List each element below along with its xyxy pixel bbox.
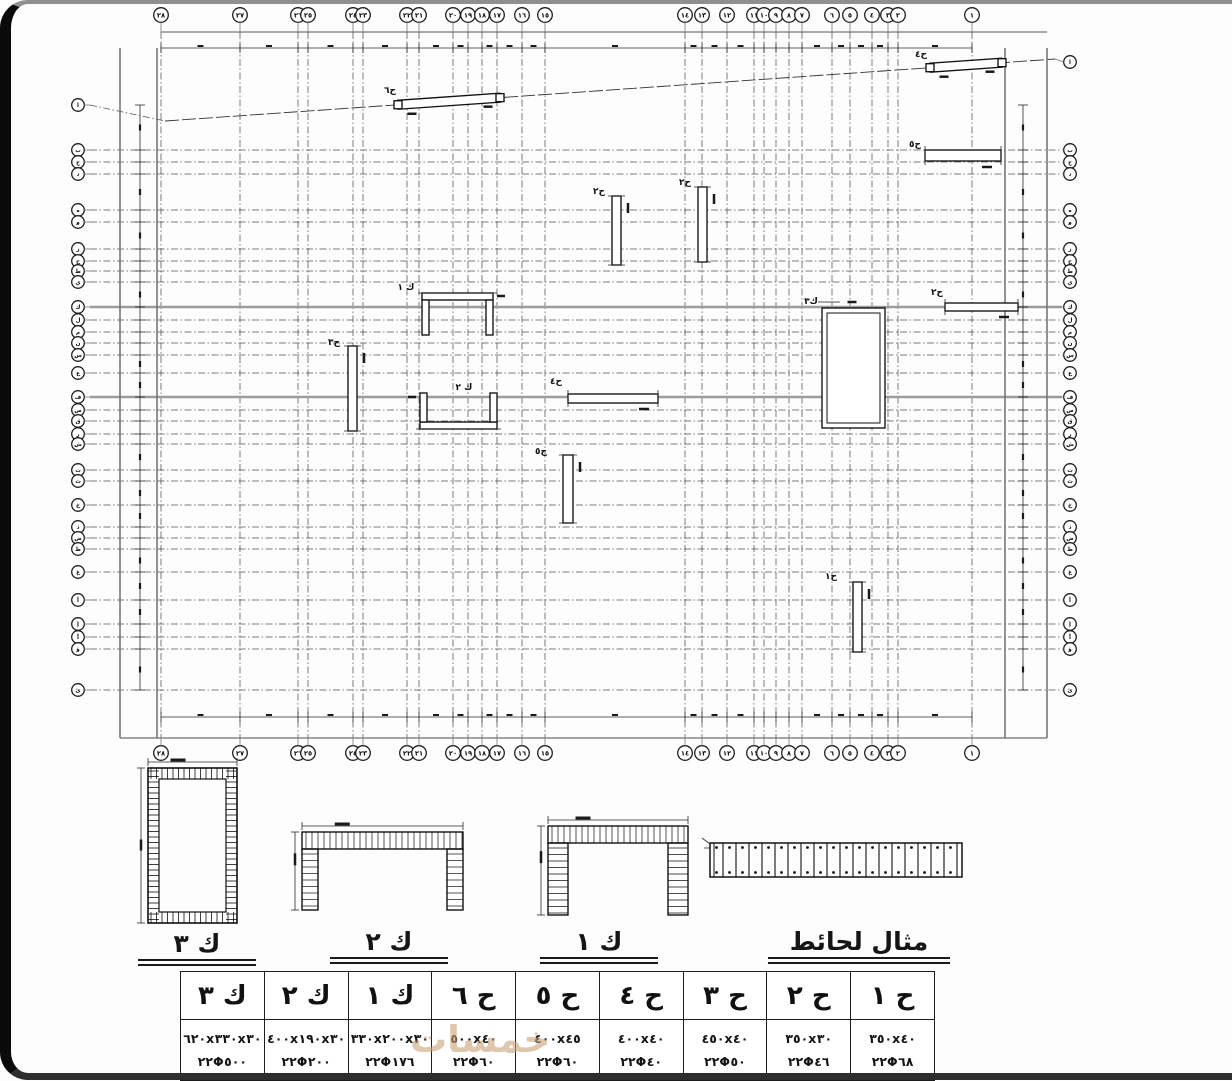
spec-rebar: ٢٢Φ٤٠ [600, 1050, 683, 1073]
svg-text:ي: ي [1067, 280, 1072, 286]
svg-text:٤: ٤ [870, 749, 874, 757]
svg-text:ح٤: ح٤ [550, 377, 563, 387]
spec-rebar: ٢٢Φ٢٠٠ [265, 1050, 348, 1073]
svg-text:ا: ا [77, 103, 79, 109]
spec-col-header: ح ٢ [767, 972, 851, 1020]
svg-text:ك: ك [1067, 305, 1072, 311]
spec-col-header: ح ١ [851, 972, 935, 1020]
svg-text:د: د [77, 172, 80, 178]
svg-text:٢٨: ٢٨ [157, 749, 166, 757]
spec-col-values: ٤٠٠x١٩٠x٣٠٢٢Φ٢٠٠ [264, 1020, 348, 1081]
svg-text:ن: ن [76, 341, 81, 347]
spec-col-header: ك ١ [348, 972, 432, 1020]
svg-text:ذ: ذ [1069, 525, 1072, 531]
svg-text:ك٣: ك٣ [804, 297, 818, 307]
spec-rebar: ٢٢Φ٥٠٠ [181, 1050, 264, 1073]
svg-text:ك ١: ك ١ [398, 283, 415, 293]
svg-text:ح٣: ح٣ [328, 338, 341, 348]
svg-text:ط: ط [1067, 269, 1073, 275]
spec-col-values: ٣٥٠x٣٠٢٢Φ٤٦ [767, 1020, 851, 1081]
spec-size: ٤٥٠x٤٠ [684, 1027, 767, 1050]
svg-text:٥: ٥ [848, 11, 852, 19]
svg-text:س: س [1066, 353, 1074, 359]
svg-text:إ: إ [1069, 622, 1071, 628]
svg-text:ؤ: ؤ [1067, 647, 1072, 653]
detail-label-wall-example: مثال لحائط [768, 927, 950, 964]
svg-text:٢١: ٢١ [415, 11, 423, 19]
svg-text:٢٨: ٢٨ [157, 11, 166, 19]
spec-size: ٣٥٠x٤٠ [851, 1027, 934, 1050]
svg-text:إ: إ [77, 622, 79, 628]
svg-text:١٧: ١٧ [493, 11, 502, 19]
svg-text:ف: ف [1067, 395, 1074, 401]
spec-rebar: ٢٢Φ٤٦ [767, 1050, 850, 1073]
svg-text:١٤: ١٤ [681, 11, 689, 19]
svg-text:ف: ف [75, 395, 82, 401]
svg-text:م: م [1068, 330, 1072, 336]
frame-lines [120, 32, 1047, 738]
svg-text:ت: ت [1067, 468, 1073, 474]
svg-text:ب: ب [75, 148, 81, 154]
svg-text:٤: ٤ [870, 11, 874, 19]
spec-size: ٤٠٠x١٩٠x٣٠ [265, 1027, 348, 1050]
svg-text:د: د [1069, 172, 1072, 178]
spec-col-header: ح ٤ [599, 972, 683, 1020]
svg-text:١٠: ١٠ [760, 11, 768, 19]
svg-text:ي: ي [75, 280, 80, 286]
svg-text:٢٣: ٢٣ [359, 11, 368, 19]
svg-text:ح٢: ح٢ [931, 288, 944, 298]
svg-text:ل: ل [1068, 318, 1073, 324]
detail-label-k3: ك ٣ [138, 929, 256, 966]
svg-text:ح٢: ح٢ [593, 187, 606, 197]
detail-drawings [137, 758, 962, 923]
svg-text:ح٢: ح٢ [679, 178, 692, 188]
svg-text:ح٥: ح٥ [909, 140, 922, 150]
svg-text:ث: ث [75, 479, 81, 485]
dimension-lines [135, 43, 1028, 722]
svg-text:ض: ض [74, 536, 82, 542]
svg-text:أ: أ [1069, 596, 1071, 604]
svg-text:ز: ز [1067, 247, 1071, 253]
svg-text:١: ١ [970, 11, 974, 19]
svg-text:١٦: ١٦ [518, 749, 526, 757]
spec-col-header: ح ٥ [516, 972, 600, 1020]
wall-elements: ح٦ح٤ح٥ح٢ح٢ح٣ح٤ح٥ح١ح٢ك ١ك ٢ك٣ [328, 50, 1018, 652]
svg-text:ح٥: ح٥ [535, 447, 548, 457]
spec-size: ٦٢٠x٣٣٠x٣٠ [181, 1027, 264, 1050]
svg-text:٦: ٦ [830, 749, 834, 757]
svg-text:ض: ض [1066, 536, 1074, 542]
grid-lines [90, 32, 1062, 738]
svg-text:س: س [74, 353, 82, 359]
svg-text:ذ: ذ [77, 525, 80, 531]
svg-text:ك ٢: ك ٢ [456, 383, 473, 393]
svg-text:ش: ش [1066, 442, 1074, 448]
svg-text:و: و [1067, 220, 1072, 226]
svg-text:ب: ب [1067, 148, 1073, 154]
svg-text:٢٥: ٢٥ [304, 11, 312, 19]
spec-size: ٣٥٠x٣٠ [767, 1027, 850, 1050]
svg-text:١٥: ١٥ [541, 11, 549, 19]
svg-text:٢٧: ٢٧ [236, 749, 245, 757]
svg-text:ح٦: ح٦ [384, 86, 397, 96]
spec-size: ٤٠٠x٤٠ [600, 1027, 683, 1050]
svg-text:١: ١ [970, 749, 974, 757]
svg-text:و: و [75, 220, 80, 226]
spec-rebar: ٢٢Φ٦٨ [851, 1050, 934, 1073]
svg-text:ث: ث [1067, 479, 1073, 485]
svg-text:٢٧: ٢٧ [236, 11, 245, 19]
svg-text:ظ: ظ [75, 547, 81, 553]
svg-text:ت: ت [75, 468, 81, 474]
spec-col-values: ٤٥٠x٤٠٢٢Φ٥٠ [683, 1020, 767, 1081]
svg-text:ز: ز [75, 247, 79, 253]
svg-text:١٦: ١٦ [518, 11, 526, 19]
detail-label-k1: ك ١ [540, 927, 658, 964]
structural-plan-canvas: ٢٨٢٨٢٧٢٧٢٦٢٦٢٥٢٥٢٤٢٤٢٣٢٣٢٢٢٢٢١٢١٢٠٢٠١٩١٩… [0, 0, 1232, 968]
svg-text:ن: ن [1068, 341, 1073, 347]
svg-text:٢٣: ٢٣ [359, 749, 368, 757]
svg-text:٥: ٥ [848, 749, 852, 757]
spec-col-header: ح ٣ [683, 972, 767, 1020]
svg-text:ص: ص [1066, 408, 1074, 414]
svg-text:ش: ش [74, 442, 82, 448]
svg-text:ق: ق [75, 419, 80, 425]
svg-text:١٩: ١٩ [464, 11, 473, 19]
svg-text:ط: ط [75, 269, 81, 275]
svg-text:١٧: ١٧ [493, 749, 502, 757]
spec-col-header: ك ٣ [181, 972, 265, 1020]
svg-text:ق: ق [1067, 419, 1072, 425]
svg-text:٢٢: ٢٢ [403, 11, 412, 19]
spec-col-values: ٦٢٠x٣٣٠x٣٠٢٢Φ٥٠٠ [181, 1020, 265, 1081]
svg-text:ص: ص [74, 408, 82, 414]
svg-text:١٢: ١٢ [723, 11, 732, 19]
wall-column-spec-table: ك ٣ك ٢ك ١ح ٦ح ٥ح ٤ح ٣ح ٢ح ١٦٢٠x٣٣٠x٣٠٢٢Φ… [180, 971, 935, 1081]
svg-text:٢١: ٢١ [415, 749, 423, 757]
svg-text:١٠: ١٠ [760, 749, 768, 757]
svg-text:ا: ا [1069, 60, 1071, 66]
watermark: خمسات [410, 1018, 550, 1061]
detail-label-k2: ك ٢ [330, 927, 448, 964]
svg-text:٢٥: ٢٥ [304, 749, 312, 757]
svg-text:ظ: ظ [1067, 547, 1073, 553]
svg-text:أ: أ [77, 596, 79, 604]
svg-text:٢٠: ٢٠ [449, 749, 457, 757]
spec-rebar: ٢٢Φ٥٠ [684, 1050, 767, 1073]
spec-col-values: ٤٠٠x٤٠٢٢Φ٤٠ [599, 1020, 683, 1081]
svg-text:ك: ك [75, 305, 80, 311]
svg-text:١٨: ١٨ [478, 11, 487, 19]
svg-text:ح١: ح١ [825, 572, 838, 582]
svg-text:١٢: ١٢ [723, 749, 732, 757]
svg-text:م: م [76, 330, 80, 336]
spec-col-header: ك ٢ [264, 972, 348, 1020]
spec-col-values: ٣٥٠x٤٠٢٢Φ٦٨ [851, 1020, 935, 1081]
svg-text:٦: ٦ [830, 11, 834, 19]
grid-bubbles: ٢٨٢٨٢٧٢٧٢٦٢٦٢٥٢٥٢٤٢٤٢٣٢٣٢٢٢٢٢١٢١٢٠٢٠١٩١٩… [72, 8, 1077, 761]
svg-text:ح٤: ح٤ [915, 50, 928, 60]
svg-text:ل: ل [76, 318, 81, 324]
spec-col-header: ح ٦ [432, 972, 516, 1020]
svg-text:ئ: ئ [1067, 688, 1072, 694]
svg-text:١٤: ١٤ [681, 749, 689, 757]
svg-text:ئ: ئ [75, 688, 80, 694]
svg-text:ؤ: ؤ [75, 647, 80, 653]
svg-text:١٨: ١٨ [478, 749, 487, 757]
svg-text:١٣: ١٣ [698, 749, 707, 757]
svg-text:٢٢: ٢٢ [403, 749, 412, 757]
svg-text:١٥: ١٥ [541, 749, 549, 757]
svg-text:١٣: ١٣ [698, 11, 707, 19]
svg-text:١٩: ١٩ [464, 749, 473, 757]
svg-text:٢٠: ٢٠ [449, 11, 457, 19]
